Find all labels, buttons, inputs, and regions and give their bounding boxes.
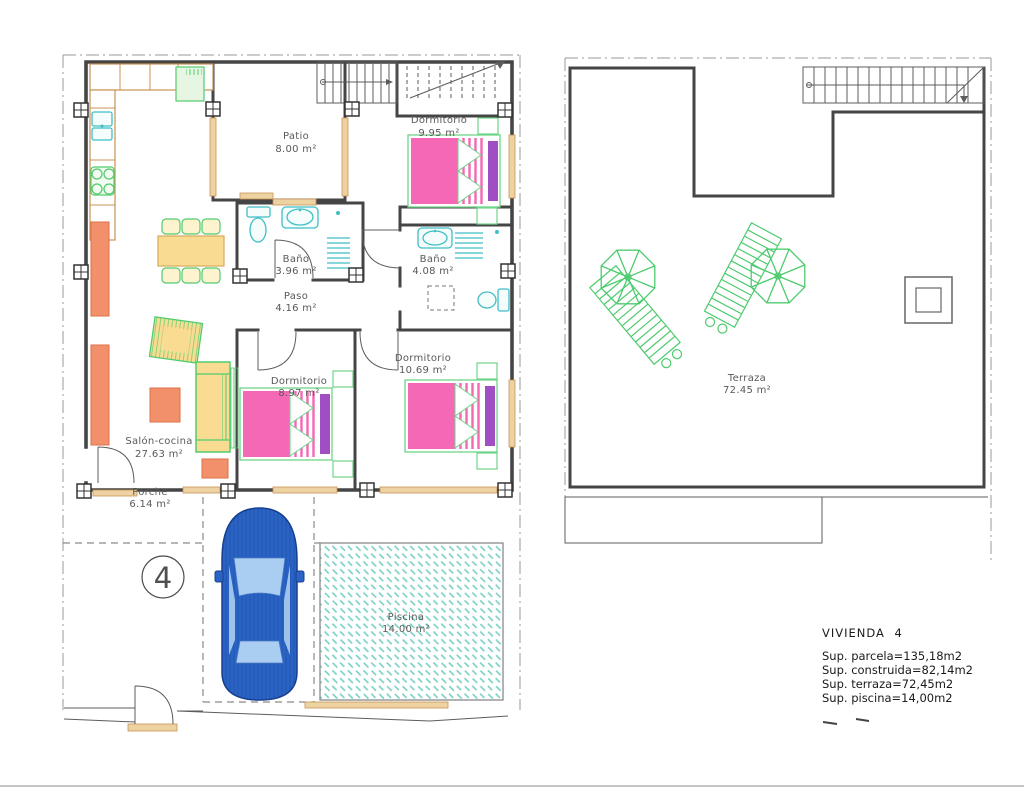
windshield xyxy=(234,558,285,596)
room-label-piscina: Piscina xyxy=(388,612,425,623)
room-label-porche: Porche xyxy=(132,487,167,498)
room-area-dorm2: 8.97 m² xyxy=(278,388,319,399)
shower xyxy=(327,211,350,268)
skylight xyxy=(905,277,952,323)
room-area-dorm1: 9.95 m² xyxy=(418,128,459,139)
room-area-dorm3: 10.69 m² xyxy=(399,365,447,376)
washbasin xyxy=(282,207,318,228)
stove xyxy=(91,167,114,195)
side-table xyxy=(202,459,228,478)
toilet xyxy=(247,207,270,242)
room-area-terraza: 72.45 m² xyxy=(723,385,771,396)
room-area-paso: 4.16 m² xyxy=(275,303,316,314)
summary-line-parcela: Sup. parcela=135,18m2 xyxy=(822,649,962,663)
roof-terrace-plan: Terraza 72.45 m² xyxy=(565,58,991,562)
washbasin xyxy=(418,228,452,248)
rear-window xyxy=(236,641,283,663)
terrace-label: Terraza 72.45 m² xyxy=(723,373,771,396)
room-area-bath1: 3.96 m² xyxy=(275,266,316,277)
room-label-dorm2: Dormitorio xyxy=(271,376,327,387)
room-label-bath2: Baño xyxy=(420,254,447,265)
bed-dormitorio-right xyxy=(405,363,497,469)
summary-line-construida: Sup. construida=82,14m2 xyxy=(822,663,973,677)
shower xyxy=(455,230,499,258)
stair-arrow-down-icon xyxy=(960,96,968,103)
summary-block: VIVIENDA 4 Sup. parcela=135,18m2 Sup. co… xyxy=(822,626,973,724)
dining-set xyxy=(158,219,224,283)
toilet xyxy=(478,289,509,311)
mirror-left xyxy=(215,571,223,582)
room-label-salon: Salón-cocina xyxy=(125,435,192,447)
ground-floor-plan: 4 Patio 8.00 m² Dormitorio 9.95 m² Baño … xyxy=(63,55,520,731)
summary-line-piscina: Sup. piscina=14,00m2 xyxy=(822,691,953,705)
plot-number-badge: 4 xyxy=(142,556,184,598)
floorplan-drawing: 4 Patio 8.00 m² Dormitorio 9.95 m² Baño … xyxy=(0,0,1024,800)
armchair xyxy=(149,317,202,363)
room-label-dorm1: Dormitorio xyxy=(411,115,467,126)
floorplan-sheet: 4 Patio 8.00 m² Dormitorio 9.95 m² Baño … xyxy=(0,0,1024,800)
kitchen xyxy=(90,64,213,240)
room-label-paso: Paso xyxy=(284,291,308,302)
room-area-porche: 6.14 m² xyxy=(129,499,170,510)
room-area-bath2: 4.08 m² xyxy=(412,266,453,277)
car xyxy=(215,508,304,700)
room-area-patio: 8.00 m² xyxy=(275,144,316,155)
room-label-bath1: Baño xyxy=(283,254,310,265)
plot-number: 4 xyxy=(154,561,172,595)
stair-arrow-up-icon xyxy=(496,61,505,69)
room-label-dorm3: Dormitorio xyxy=(395,353,451,364)
pool-edge xyxy=(305,702,448,708)
sofa xyxy=(196,362,238,452)
fridge-vent xyxy=(186,69,202,75)
room-area-salon: 27.63 m² xyxy=(135,449,183,460)
room-label-patio: Patio xyxy=(283,131,309,142)
bath2-sliding-door xyxy=(428,286,454,310)
room-label-terraza: Terraza xyxy=(727,373,766,384)
terrace-furniture xyxy=(590,223,805,373)
signature-marks xyxy=(823,719,869,724)
summary-line-terraza: Sup. terraza=72,45m2 xyxy=(822,677,953,691)
room-area-piscina: 14.00 m² xyxy=(382,624,430,635)
stairs-roof xyxy=(803,67,984,103)
dining-table xyxy=(158,236,224,266)
shelf-left-2 xyxy=(91,345,109,445)
kitchen-sink xyxy=(92,112,112,140)
coffee-table xyxy=(150,388,180,422)
summary-title: VIVIENDA 4 xyxy=(822,626,903,640)
shelf-left-1 xyxy=(91,222,109,316)
mirror-right xyxy=(296,571,304,582)
